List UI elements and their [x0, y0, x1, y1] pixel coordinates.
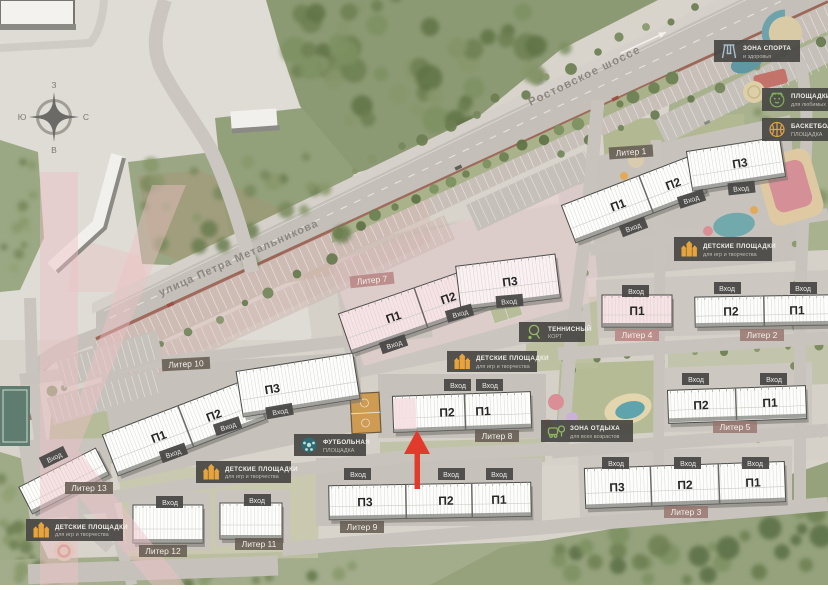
svg-text:для всех возрастов: для всех возрастов: [570, 434, 620, 440]
svg-text:Вход: Вход: [688, 377, 704, 384]
svg-text:для игр и творчества: для игр и творчества: [703, 252, 758, 258]
svg-text:Вход: Вход: [162, 500, 178, 507]
svg-text:КОРТ: КОРТ: [548, 334, 563, 340]
svg-text:П2: П2: [693, 398, 709, 413]
svg-text:Ю: Ю: [18, 112, 27, 122]
svg-text:ЗОНА ОТДЫХА: ЗОНА ОТДЫХА: [570, 425, 620, 432]
svg-text:Литер 13: Литер 13: [71, 483, 107, 493]
svg-text:Вход: Вход: [680, 461, 696, 468]
svg-text:П1: П1: [491, 493, 507, 507]
svg-text:ДЕТСКИЕ ПЛОЩАДКИ: ДЕТСКИЕ ПЛОЩАДКИ: [476, 355, 549, 362]
svg-text:Литер 12: Литер 12: [145, 546, 181, 556]
svg-text:Литер 2: Литер 2: [747, 330, 778, 340]
svg-text:З: З: [51, 80, 56, 90]
svg-text:П1: П1: [762, 396, 778, 411]
svg-text:П1: П1: [745, 475, 761, 490]
svg-text:П3: П3: [502, 274, 519, 290]
svg-text:П1: П1: [629, 304, 645, 318]
svg-text:П3: П3: [609, 480, 625, 495]
svg-text:БАСКЕТБОЛ: БАСКЕТБОЛ: [791, 123, 828, 130]
svg-text:Вход: Вход: [350, 472, 366, 479]
svg-text:Вход: Вход: [482, 383, 498, 390]
svg-text:Вход: Вход: [443, 472, 459, 479]
svg-text:П1: П1: [475, 404, 491, 419]
svg-text:П2: П2: [677, 478, 693, 493]
svg-text:Вход: Вход: [501, 298, 517, 306]
svg-text:П2: П2: [439, 405, 455, 420]
svg-text:Литер 11: Литер 11: [242, 539, 277, 549]
svg-text:Вход: Вход: [747, 461, 763, 468]
svg-text:Вход: Вход: [491, 472, 507, 479]
svg-text:ПЛОЩАДКИ: ПЛОЩАДКИ: [791, 93, 828, 100]
svg-text:ДЕТСКИЕ ПЛОЩАДКИ: ДЕТСКИЕ ПЛОЩАДКИ: [225, 466, 298, 473]
svg-text:П3: П3: [357, 495, 373, 509]
svg-text:ДЕТСКИЕ ПЛОЩАДКИ: ДЕТСКИЕ ПЛОЩАДКИ: [55, 524, 128, 531]
svg-text:П2: П2: [723, 304, 739, 318]
svg-text:Вход: Вход: [608, 461, 624, 468]
svg-text:П1: П1: [789, 303, 805, 317]
svg-text:Вход: Вход: [766, 377, 782, 384]
svg-text:Литер 9: Литер 9: [347, 522, 378, 532]
svg-text:Вход: Вход: [628, 289, 644, 296]
svg-text:ЗОНА СПОРТА: ЗОНА СПОРТА: [743, 45, 791, 52]
svg-text:Вход: Вход: [249, 498, 265, 505]
svg-text:ПЛОЩАДКА: ПЛОЩАДКА: [791, 132, 823, 138]
svg-text:П3: П3: [731, 155, 749, 171]
svg-text:Литер 5: Литер 5: [720, 422, 751, 432]
svg-text:для игр и творчества: для игр и творчества: [55, 532, 110, 538]
svg-text:для игр и творчества: для игр и творчества: [225, 474, 280, 480]
svg-text:Литер 4: Литер 4: [622, 330, 653, 340]
svg-text:Литер 3: Литер 3: [671, 507, 702, 517]
svg-text:С: С: [83, 112, 89, 122]
svg-text:ДЕТСКИЕ ПЛОЩАДКИ: ДЕТСКИЕ ПЛОЩАДКИ: [703, 243, 776, 250]
svg-text:Литер 10: Литер 10: [168, 358, 204, 370]
svg-text:Вход: Вход: [719, 286, 735, 293]
svg-text:ТЕННИСНЫЙ: ТЕННИСНЫЙ: [548, 325, 592, 333]
svg-text:ПЛОЩАДКА: ПЛОЩАДКА: [323, 448, 355, 454]
svg-text:В: В: [51, 145, 57, 155]
svg-text:П2: П2: [438, 494, 454, 508]
svg-text:Литер 8: Литер 8: [482, 431, 513, 441]
svg-text:Вход: Вход: [795, 286, 811, 293]
svg-text:ФУТБОЛЬНАЯ: ФУТБОЛЬНАЯ: [323, 439, 370, 446]
svg-text:для любимых: для любимых: [791, 102, 826, 108]
svg-text:и здоровья: и здоровья: [743, 54, 771, 60]
svg-text:П3: П3: [264, 381, 282, 397]
svg-text:для игр и творчества: для игр и творчества: [476, 364, 531, 370]
svg-text:Вход: Вход: [450, 383, 466, 390]
